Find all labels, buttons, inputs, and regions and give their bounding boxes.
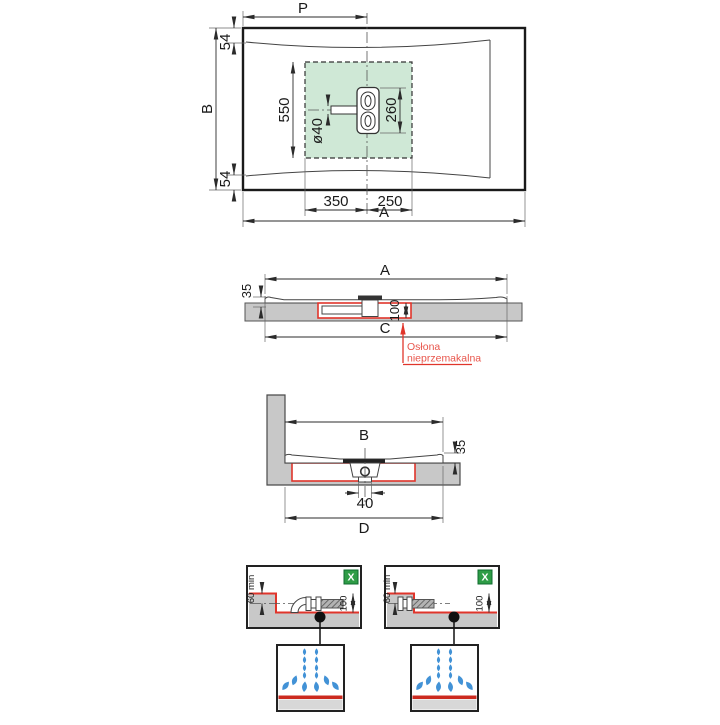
dim-min-depth-left: 60 min bbox=[246, 575, 257, 604]
shower-tray-installation-drawing: P B 54 54 550 ø40 260 350 250 bbox=[0, 0, 720, 720]
dim-a-top: A bbox=[379, 204, 389, 221]
waterproof-callout: Osłona nieprzemakalna bbox=[403, 323, 481, 365]
leak-point-marker bbox=[315, 612, 326, 623]
dim-recess-depth-side: 100 bbox=[387, 300, 402, 322]
side-view-length: A 35 100 C Osłona nieprzemakalna bbox=[239, 262, 522, 365]
dim-drain-length: 260 bbox=[383, 97, 400, 122]
leak-point-marker bbox=[449, 612, 460, 623]
dim-c: C bbox=[380, 320, 391, 337]
waterproof-layer bbox=[413, 696, 477, 700]
variant-badge-label-right: X bbox=[481, 572, 488, 584]
tray-profile bbox=[265, 297, 507, 303]
dim-a-side: A bbox=[380, 262, 390, 279]
water-drain-box bbox=[411, 645, 478, 711]
dim-b-side: B bbox=[359, 427, 369, 444]
dim-recess-right: 100 bbox=[475, 596, 486, 612]
dim-drain-offset-left: 350 bbox=[323, 193, 348, 210]
top-view: P B 54 54 550 ø40 260 350 250 bbox=[199, 0, 525, 227]
dim-p: P bbox=[298, 0, 308, 17]
waterproof-layer bbox=[279, 696, 343, 700]
dim-zone-height: 550 bbox=[276, 97, 293, 122]
tray-slope-line-bottom bbox=[246, 170, 490, 178]
dim-edge-top: 54 bbox=[217, 34, 234, 51]
drain-pipe-straight bbox=[398, 597, 434, 611]
side-view-width: B 35 40 D bbox=[267, 395, 468, 537]
dim-edge-bottom: 54 bbox=[217, 171, 234, 188]
technical-drawing: P B 54 54 550 ø40 260 350 250 bbox=[0, 0, 720, 720]
dim-recess-left: 100 bbox=[339, 596, 350, 612]
dim-height-side: 35 bbox=[239, 284, 254, 298]
dim-min-depth-right: 60 min bbox=[382, 575, 393, 604]
dim-d: D bbox=[359, 520, 370, 537]
siphon bbox=[322, 296, 382, 317]
dim-pipe-diameter: ø40 bbox=[309, 118, 326, 144]
install-detail-left: 60 min 100 X bbox=[246, 566, 361, 711]
waterproof-label-line2: nieprzemakalna bbox=[407, 353, 481, 365]
dim-b-top: B bbox=[199, 104, 216, 114]
water-drain-box bbox=[277, 645, 344, 711]
dim-outlet: 40 bbox=[357, 495, 374, 512]
variant-badge-label-left: X bbox=[347, 572, 354, 584]
dim-height-side-2: 35 bbox=[453, 440, 468, 454]
tray-slope-line-top bbox=[246, 40, 490, 48]
install-detail-right: 60 min 100 X bbox=[382, 566, 499, 711]
waterproof-label-line1: Osłona bbox=[407, 341, 440, 353]
